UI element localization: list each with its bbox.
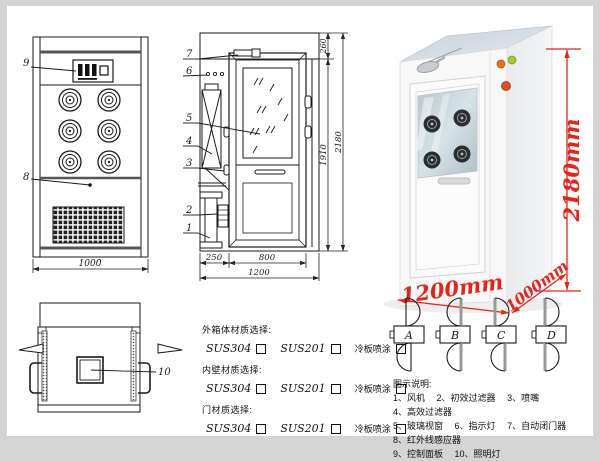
door-handle bbox=[255, 170, 285, 174]
left-door-swing bbox=[19, 344, 43, 393]
material-checkbox[interactable] bbox=[256, 424, 266, 434]
legend-row: 9、控制面板 10、照明灯 bbox=[393, 447, 599, 461]
glass-hatch-marks bbox=[250, 78, 288, 153]
dim-260: 260 bbox=[319, 38, 328, 54]
material-selection: 外箱体材质选择: SUS304 SUS201 冷板喷涂 内壁材质选择: SUS3… bbox=[200, 323, 395, 443]
part-label-2: 2 bbox=[185, 205, 192, 216]
legend-item: 9、控制面板 bbox=[393, 449, 443, 459]
door-closer bbox=[234, 49, 260, 57]
top-view-drawing: 10 bbox=[18, 293, 188, 438]
material-option-label: SUS304 bbox=[206, 422, 251, 435]
material-checkbox[interactable] bbox=[331, 384, 341, 394]
material-checkbox[interactable] bbox=[396, 344, 406, 354]
product-photo: 2180mm 1200mm 1000mm bbox=[383, 14, 593, 320]
dim-1910: 1910 bbox=[319, 144, 329, 166]
door-type-a-letter: A bbox=[404, 329, 413, 342]
material-options-row: SUS304 SUS201 冷板喷涂 bbox=[206, 342, 395, 355]
red-emergency-button bbox=[502, 82, 511, 91]
label-10-leader bbox=[91, 370, 156, 372]
material-option-label: 冷板喷涂 bbox=[355, 422, 391, 435]
indicator-dots bbox=[206, 72, 223, 75]
grille-panel bbox=[40, 178, 141, 248]
material-group-title: 门材质选择: bbox=[202, 403, 395, 416]
part-label-1: 1 bbox=[186, 223, 192, 234]
legend-title: 图示说明: bbox=[393, 377, 599, 391]
legend-item: 10、照明灯 bbox=[455, 449, 501, 459]
dim-800: 800 bbox=[259, 253, 276, 263]
dim-1200: 1200 bbox=[248, 268, 270, 278]
door-type-c-letter: C bbox=[497, 329, 506, 342]
part-label-10: 10 bbox=[158, 367, 171, 378]
part-label-4: 4 bbox=[185, 136, 192, 147]
part-label-8: 8 bbox=[23, 172, 29, 183]
part-label-7: 7 bbox=[186, 49, 193, 60]
door-type-b-letter: B bbox=[450, 329, 459, 342]
dim-2180: 2180 bbox=[334, 131, 344, 154]
door-type-d-letter: D bbox=[546, 329, 556, 342]
section-view-drawing: 7 6 5 4 3 2 1 250 800 1200 bbox=[158, 13, 353, 305]
door-glass bbox=[236, 68, 299, 233]
material-option-label: SUS304 bbox=[206, 342, 251, 355]
control-panel bbox=[73, 60, 113, 82]
legend-item: 5、玻璃视窗 bbox=[393, 421, 443, 431]
front-width-dim-text: 1000 bbox=[79, 259, 102, 269]
material-checkbox[interactable] bbox=[256, 384, 266, 394]
material-option-label: 冷板喷涂 bbox=[355, 342, 391, 355]
legend-item: 8、红外线感应器 bbox=[393, 435, 461, 445]
cabinet-side-face bbox=[507, 26, 552, 301]
legend-item: 6、指示灯 bbox=[455, 421, 496, 431]
dim-250: 250 bbox=[205, 253, 223, 263]
material-checkbox[interactable] bbox=[256, 344, 266, 354]
material-group-title: 内壁材质选择: bbox=[202, 363, 395, 376]
legend: 图示说明: 1、风机 2、初效过滤器 3、喷嘴 4、高效过滤器 5、玻璃视窗 6… bbox=[393, 377, 599, 461]
legend-item: 3、喷嘴 bbox=[507, 393, 539, 403]
part-label-3: 3 bbox=[186, 158, 192, 169]
material-options-row: SUS304 SUS201 冷板喷涂 bbox=[206, 422, 395, 435]
material-option-label: SUS201 bbox=[280, 382, 325, 395]
part-label-5: 5 bbox=[186, 113, 192, 124]
part-label-6: 6 bbox=[186, 66, 193, 77]
material-option-label: SUS304 bbox=[206, 382, 251, 395]
legend-row: 5、玻璃视窗 6、指示灯 7、自动闭门器 8、红外线感应器 bbox=[393, 419, 599, 447]
air-shower-datasheet: { "colors": { "dim_red": "#e8231a", "lin… bbox=[0, 0, 600, 450]
material-option-label: SUS201 bbox=[280, 342, 325, 355]
legend-item: 4、高效过滤器 bbox=[393, 407, 452, 417]
part-label-9: 9 bbox=[23, 58, 30, 69]
prefilter-box bbox=[218, 205, 228, 227]
material-checkbox[interactable] bbox=[331, 424, 341, 434]
material-group-title: 外箱体材质选择: bbox=[202, 323, 395, 336]
material-checkbox[interactable] bbox=[331, 344, 341, 354]
door-frame bbox=[229, 53, 306, 247]
nozzle-array bbox=[59, 89, 120, 173]
cabinet-door bbox=[410, 76, 485, 278]
green-indicator-light bbox=[508, 56, 516, 64]
material-options-row: SUS304 SUS201 冷板喷涂 bbox=[206, 382, 395, 395]
door-hinges bbox=[224, 96, 311, 175]
door-handle-bar bbox=[438, 178, 470, 184]
orange-indicator-light bbox=[497, 60, 505, 68]
legend-item: 2、初效过滤器 bbox=[437, 393, 496, 403]
cabinet-3d bbox=[400, 26, 552, 306]
photo-height-dim: 2180mm bbox=[559, 119, 584, 223]
catalog-sheet: 9 8 1000 bbox=[7, 6, 593, 436]
legend-row: 1、风机 2、初效过滤器 3、喷嘴 4、高效过滤器 bbox=[393, 391, 599, 419]
legend-item: 1、风机 bbox=[393, 393, 425, 403]
material-option-label: SUS201 bbox=[280, 422, 325, 435]
fan-unit bbox=[200, 192, 228, 248]
door-type-diagrams: A B C D bbox=[386, 296, 578, 374]
front-view-drawing: 9 8 1000 bbox=[18, 30, 178, 280]
material-option-label: 冷板喷涂 bbox=[355, 382, 391, 395]
legend-item: 7、自动闭门器 bbox=[507, 421, 566, 431]
